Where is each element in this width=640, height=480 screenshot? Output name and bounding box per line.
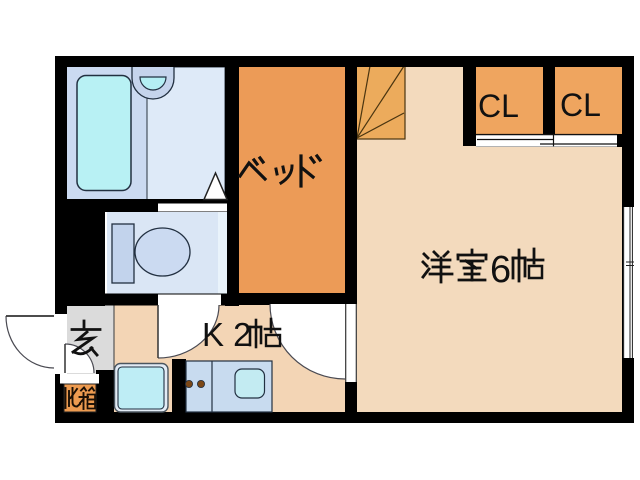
svg-text:K 2: K 2 [202,316,252,353]
svg-text:6: 6 [490,249,511,291]
svg-text:CL: CL [478,88,519,124]
svg-text:CL: CL [560,87,601,123]
